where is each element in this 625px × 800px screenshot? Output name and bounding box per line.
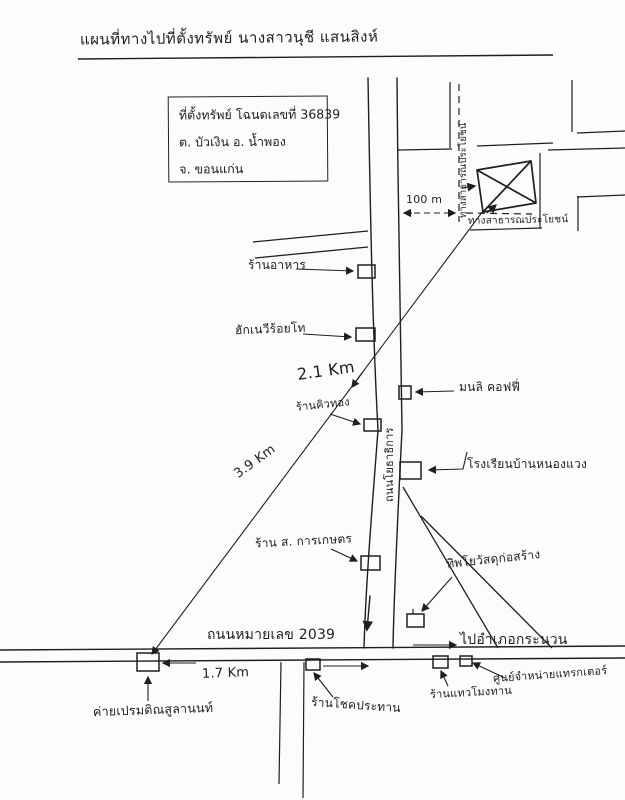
- city-grid: [398, 80, 625, 231]
- title-underline: [78, 55, 553, 59]
- label-yothathikan-road: ถนนโยธาธิการ: [384, 427, 397, 502]
- deed-info-box: ที่ตั้งทรัพย์ โฉนดเลขที่ 36839 ต. บัวเงิ…: [168, 95, 329, 182]
- side-road-northwest: [253, 231, 368, 258]
- hug-navy-arrow: [303, 334, 351, 337]
- label-public-way-vertical: ทางสาธารณประโยชน์: [459, 123, 470, 218]
- school-box: [400, 462, 421, 479]
- school-arrow: [429, 452, 467, 470]
- label-scale-100m: 100 m: [406, 194, 442, 207]
- measurement-line: [152, 211, 483, 654]
- label-dist-1-7km: 1.7 Km: [202, 666, 250, 683]
- khiu-thong-arrow: [330, 414, 360, 424]
- s-kankaset-arrow: [331, 549, 357, 561]
- deed-number-line: ที่ตั้งทรัพย์ โฉนดเลขที่ 36839: [179, 104, 321, 125]
- construction-arrow: [422, 577, 452, 611]
- monli-coffee-arrow: [416, 391, 454, 392]
- property-marker: [462, 161, 536, 213]
- tractor-center-box: [460, 656, 472, 666]
- label-hug-navy-shop: ฮักเนวีร้อยโท: [235, 322, 306, 338]
- label-highway-2039: ถนนหมายเลข 2039: [207, 627, 335, 643]
- camp-box: [137, 653, 159, 671]
- province-line: จ. ขอนแก่น: [179, 158, 321, 179]
- hand-drawn-map: แผนที่ทางไปที่ตั้งทรัพย์ นางสาวนุชี แสนส…: [0, 0, 625, 800]
- thaew-mong-arrow: [441, 671, 448, 686]
- label-public-way-horizontal: ทางสาธารณประโยชน์: [468, 214, 569, 227]
- main-road-end-arrow: [367, 596, 370, 630]
- public-way-dashed-road: [459, 84, 532, 222]
- map-title: แผนที่ทางไปที่ตั้งทรัพย์ นางสาวนุชี แสนส…: [80, 28, 378, 48]
- label-nong-waeng-school: โรงเรียนบ้านหนองแวง: [467, 458, 587, 472]
- label-to-kranuan: ไปอำเภอกระนวน: [460, 632, 568, 648]
- subdistrict-line: ต. บัวเงิน อ. น้ำพอง: [179, 131, 321, 152]
- chok-prathan-arrow: [314, 673, 333, 697]
- thaew-mong-box: [433, 656, 448, 668]
- construction-box: [407, 614, 424, 627]
- hug-navy-box: [356, 328, 375, 341]
- s-kankaset-box: [361, 556, 380, 570]
- south-roads: [279, 662, 304, 798]
- label-restaurant: ร้านอาหาร: [248, 259, 306, 273]
- label-monli-coffee: มนลิ คอฟฟี่: [459, 381, 520, 395]
